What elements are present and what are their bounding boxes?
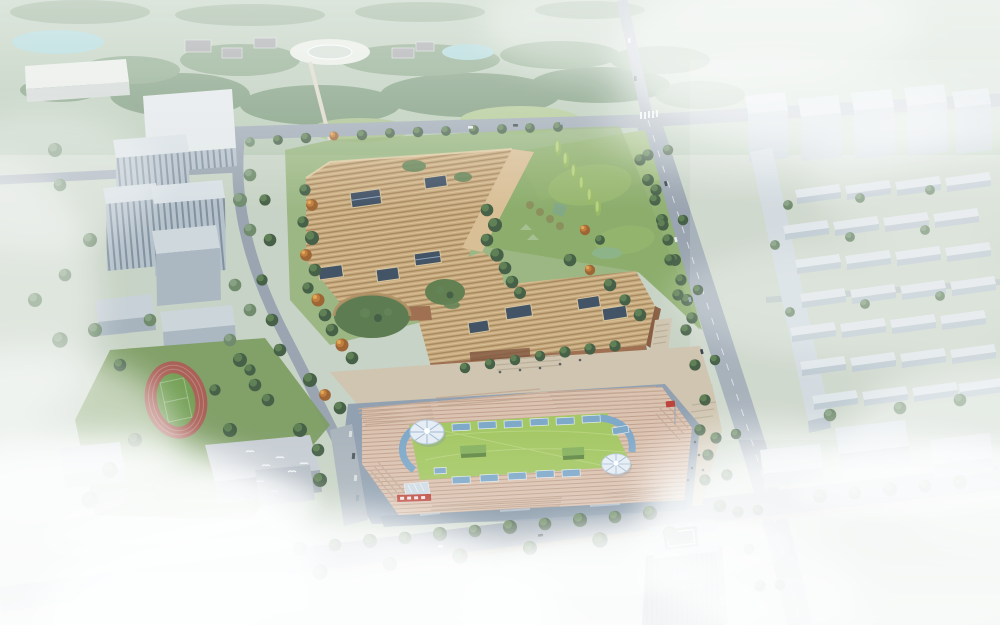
rendering-canvas: [0, 0, 1000, 625]
color-grade-overlay: [0, 0, 1000, 625]
aerial-city-rendering: [0, 0, 1000, 625]
